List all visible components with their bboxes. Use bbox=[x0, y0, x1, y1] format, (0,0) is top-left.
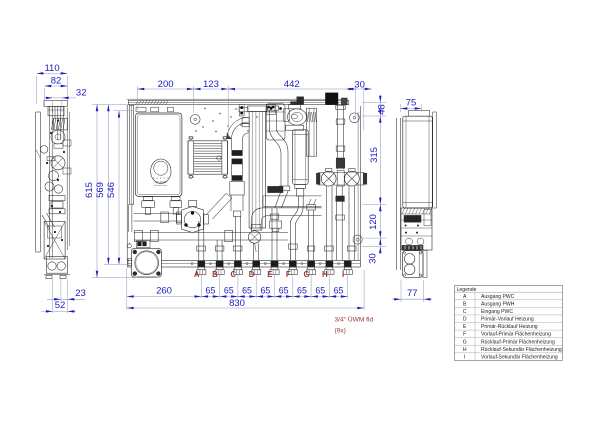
svg-text:546: 546 bbox=[106, 182, 117, 198]
svg-text:G: G bbox=[303, 270, 309, 279]
svg-text:65: 65 bbox=[206, 286, 216, 296]
svg-text:65: 65 bbox=[279, 286, 289, 296]
svg-text:200: 200 bbox=[158, 79, 174, 90]
svg-text:E: E bbox=[267, 270, 272, 279]
svg-text:E: E bbox=[463, 324, 467, 330]
svg-text:D: D bbox=[249, 270, 255, 279]
svg-text:Rücklauf-Primär Flächenheizung: Rücklauf-Primär Flächenheizung bbox=[481, 339, 555, 345]
svg-text:32: 32 bbox=[76, 87, 87, 98]
svg-text:569: 569 bbox=[95, 182, 106, 198]
svg-text:82: 82 bbox=[51, 76, 62, 87]
svg-text:D: D bbox=[463, 317, 467, 323]
svg-text:C: C bbox=[463, 309, 467, 315]
svg-text:3/4" ÜWM fld: 3/4" ÜWM fld bbox=[335, 316, 374, 324]
svg-text:I: I bbox=[342, 270, 344, 279]
svg-text:Ausgang PWC: Ausgang PWC bbox=[481, 294, 515, 300]
svg-text:65: 65 bbox=[224, 286, 234, 296]
svg-text:Rücklauf-Sekundär Flächenheizu: Rücklauf-Sekundär Flächenheizung bbox=[481, 347, 562, 353]
svg-text:23: 23 bbox=[75, 288, 86, 299]
svg-text:120: 120 bbox=[368, 214, 379, 230]
svg-text:30: 30 bbox=[367, 253, 378, 264]
svg-text:(9x): (9x) bbox=[335, 328, 346, 335]
svg-text:65: 65 bbox=[334, 286, 344, 296]
svg-text:Primär-Rücklauf Heizung: Primär-Rücklauf Heizung bbox=[481, 324, 538, 330]
svg-text:G: G bbox=[463, 339, 467, 345]
svg-text:Primär-Vorlauf Heizung: Primär-Vorlauf Heizung bbox=[481, 317, 534, 323]
svg-text:48: 48 bbox=[377, 104, 388, 115]
svg-text:65: 65 bbox=[242, 286, 252, 296]
svg-text:Vorlauf-Primär Flächenheizung: Vorlauf-Primär Flächenheizung bbox=[481, 332, 551, 338]
svg-text:Legende: Legende bbox=[457, 287, 477, 293]
svg-text:H: H bbox=[463, 347, 467, 353]
svg-text:315: 315 bbox=[369, 147, 380, 163]
svg-text:B: B bbox=[212, 270, 218, 279]
svg-text:75: 75 bbox=[406, 97, 417, 108]
svg-text:65: 65 bbox=[297, 286, 307, 296]
svg-text:H: H bbox=[322, 270, 328, 279]
svg-text:F: F bbox=[286, 270, 291, 279]
svg-text:CLAGE: CLAGE bbox=[155, 180, 166, 184]
svg-text:30: 30 bbox=[354, 80, 365, 91]
svg-text:830: 830 bbox=[229, 298, 245, 309]
svg-text:A: A bbox=[194, 270, 200, 279]
svg-text:Eingang PWC: Eingang PWC bbox=[481, 309, 513, 315]
svg-text:615: 615 bbox=[84, 182, 95, 198]
svg-text:Vorlauf-Sekundär Flächenheizun: Vorlauf-Sekundär Flächenheizung bbox=[481, 354, 558, 360]
svg-text:F: F bbox=[463, 332, 466, 338]
svg-text:I: I bbox=[464, 354, 465, 360]
svg-text:123: 123 bbox=[203, 79, 219, 90]
svg-text:A: A bbox=[463, 294, 467, 300]
svg-text:B: B bbox=[463, 301, 467, 307]
svg-text:65: 65 bbox=[315, 286, 325, 296]
svg-text:Ausgang PWH: Ausgang PWH bbox=[481, 301, 515, 307]
svg-text:260: 260 bbox=[156, 286, 172, 297]
svg-text:C: C bbox=[230, 270, 236, 279]
svg-text:110: 110 bbox=[44, 63, 59, 74]
svg-text:65: 65 bbox=[260, 286, 270, 296]
svg-text:52: 52 bbox=[55, 300, 66, 311]
svg-text:442: 442 bbox=[284, 79, 300, 90]
svg-text:77: 77 bbox=[407, 288, 418, 299]
